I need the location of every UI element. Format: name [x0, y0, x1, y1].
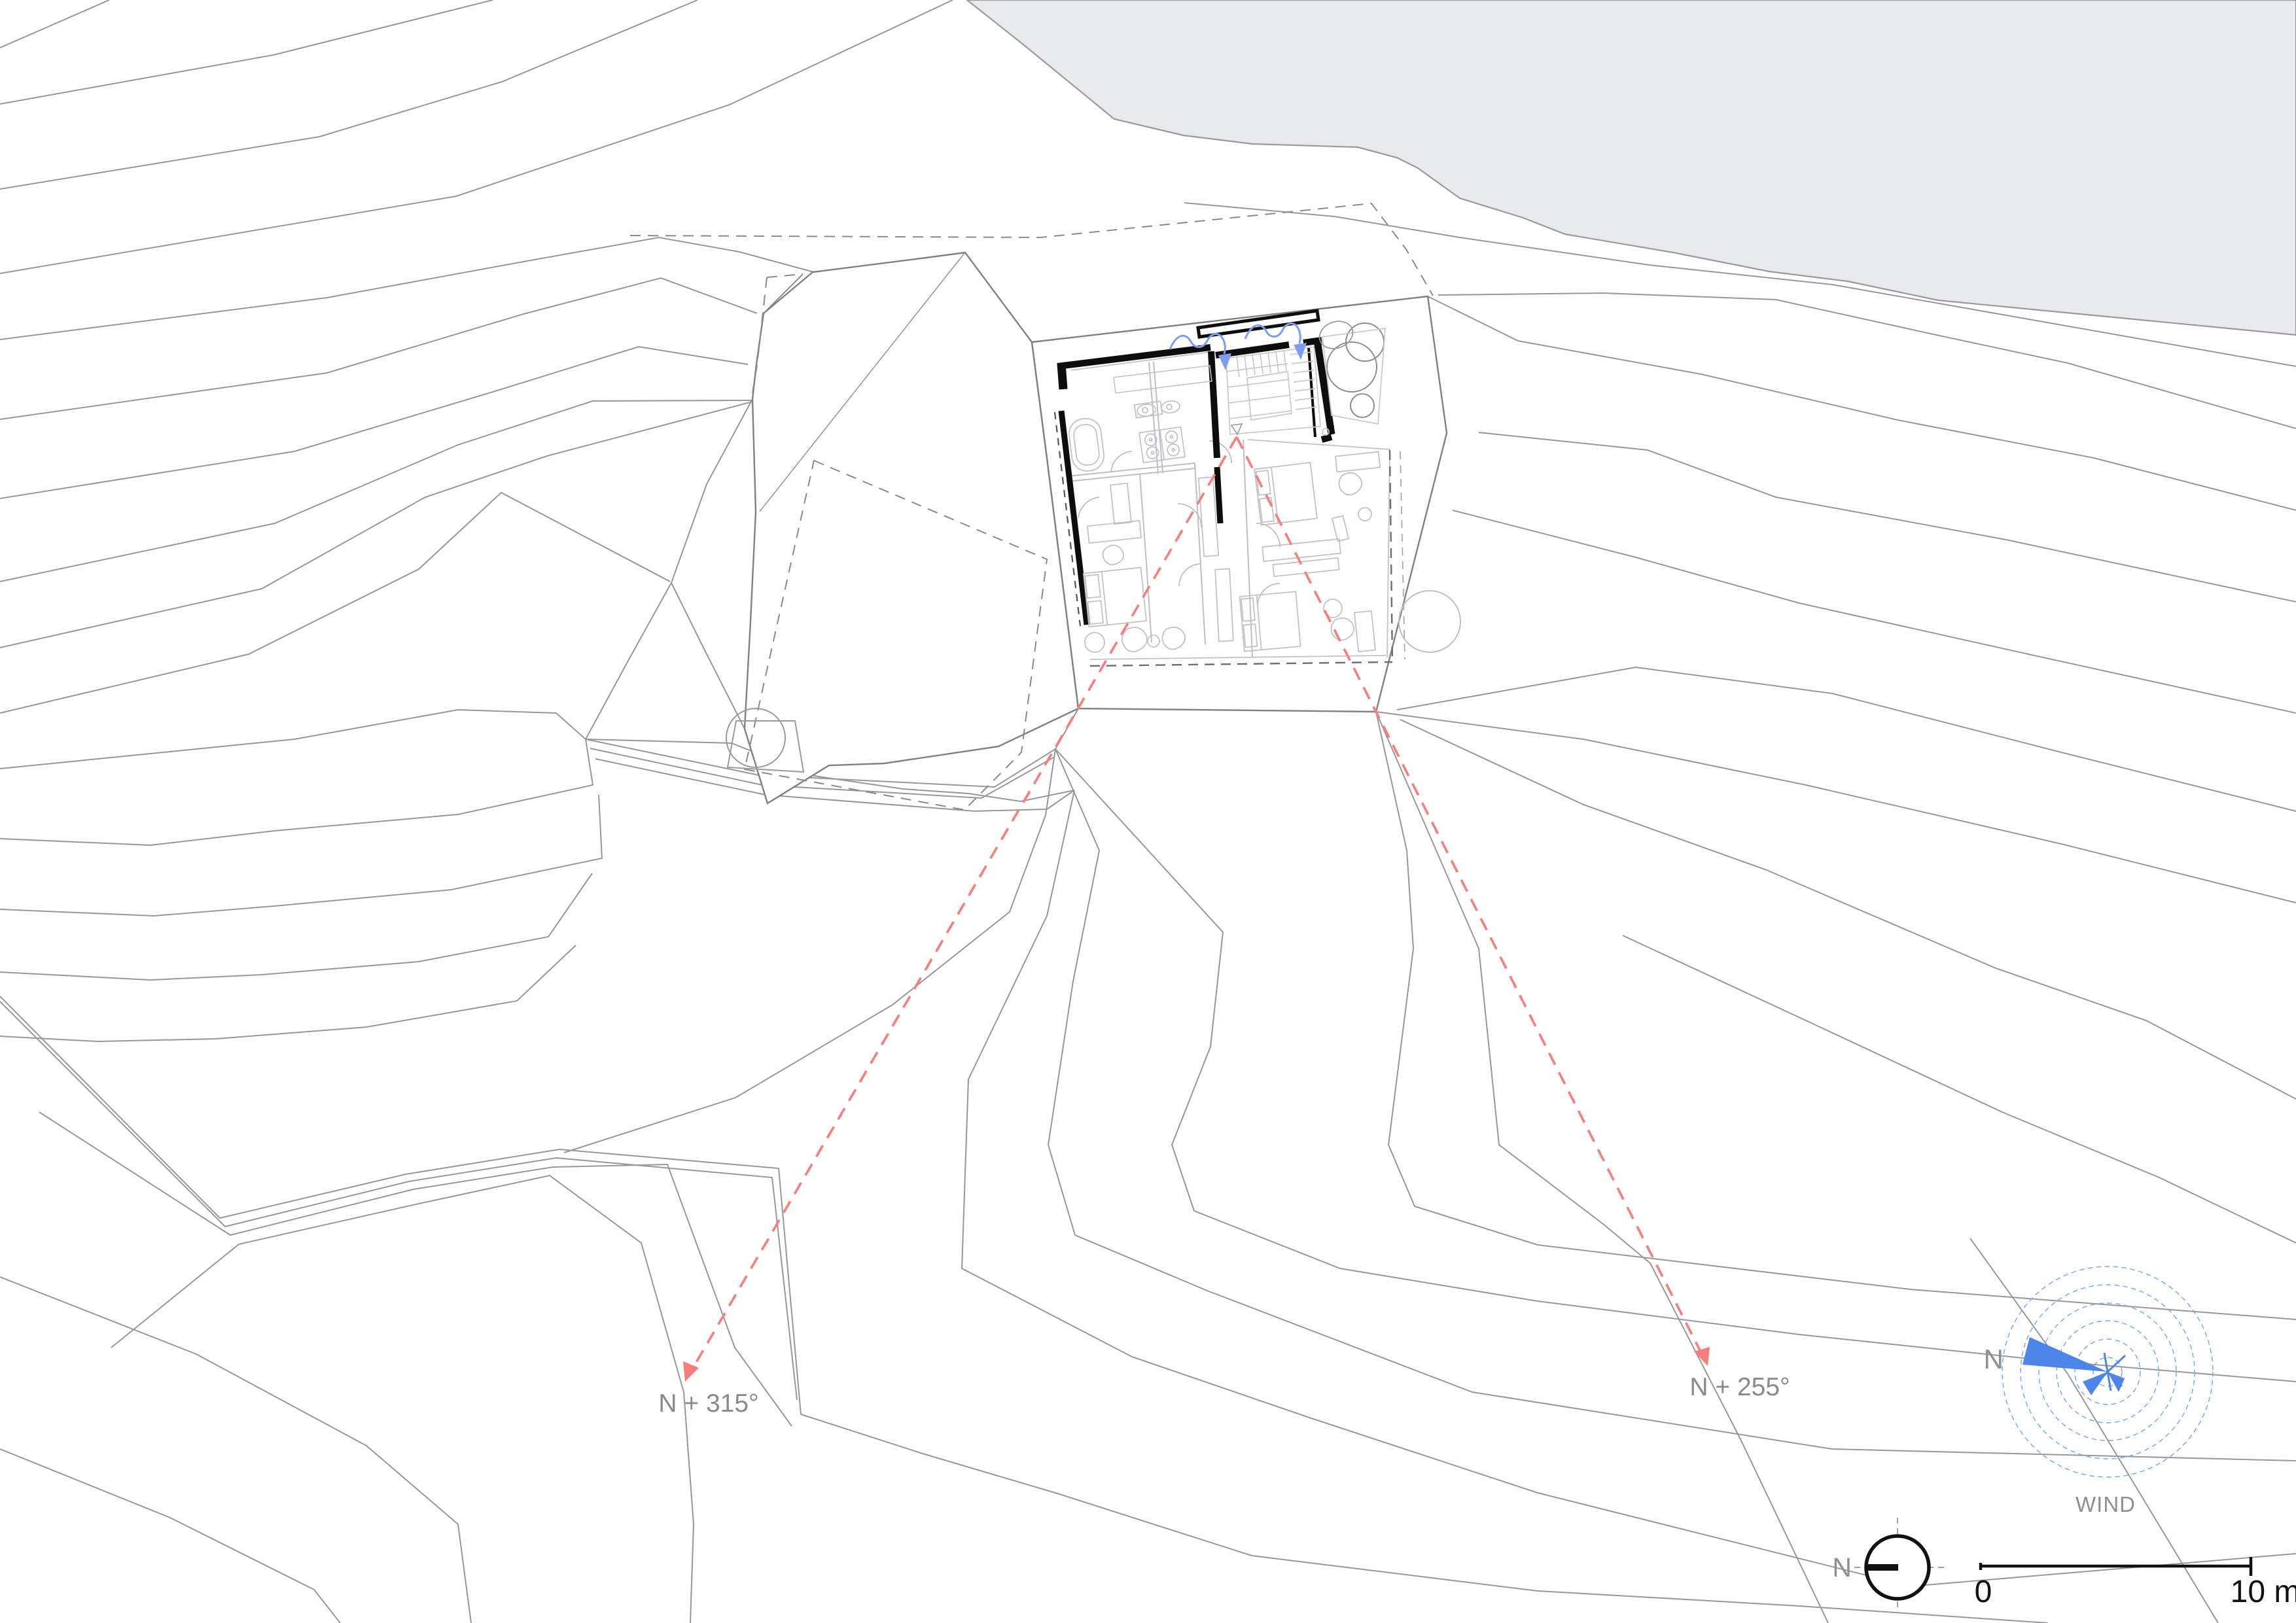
svg-text:N + 255°: N + 255°: [1689, 1373, 1790, 1401]
svg-text:N: N: [1984, 1344, 2004, 1374]
svg-text:N + 315°: N + 315°: [658, 1389, 758, 1418]
svg-text:WIND: WIND: [2075, 1492, 2136, 1516]
svg-text:10 m: 10 m: [2231, 1575, 2296, 1609]
svg-text:N: N: [1832, 1552, 1852, 1582]
svg-text:0: 0: [1975, 1575, 1992, 1609]
